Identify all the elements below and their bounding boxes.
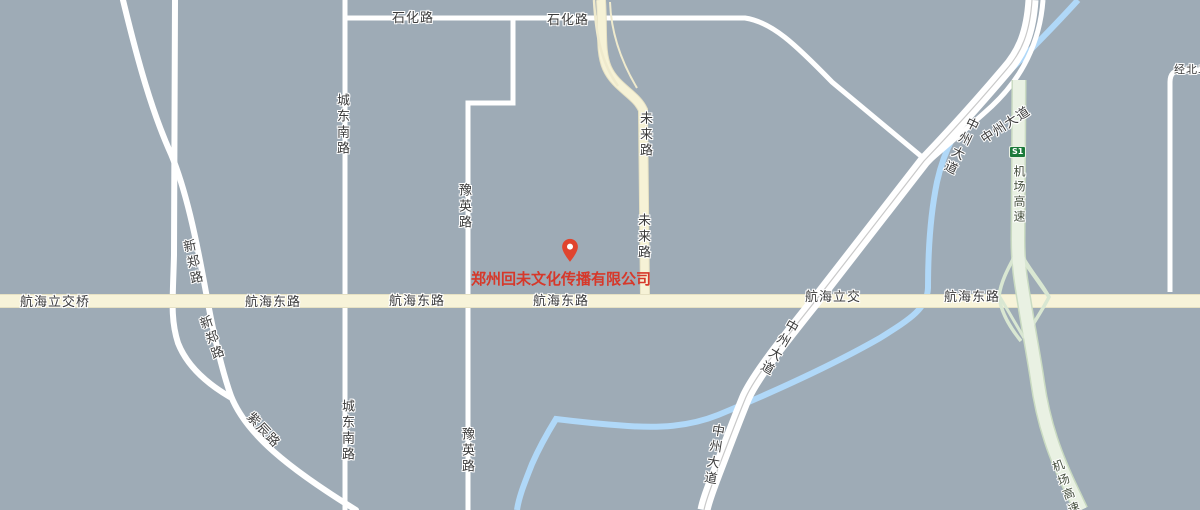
road-label-hanghai-2: 航海东路 xyxy=(389,295,445,308)
road-label-yuying-1: 豫英路 xyxy=(457,183,470,231)
road-label-chengdongnan-1: 城东南路 xyxy=(335,93,348,157)
road-label-shihua-2: 石化路 xyxy=(547,14,589,27)
road-network xyxy=(0,0,1200,510)
road-zhongzhou xyxy=(704,0,1032,510)
map-canvas[interactable]: 石化路 石化路 航海立交桥 航海东路 航海东路 航海东路 航海立交 航海东路 经… xyxy=(0,0,1200,510)
road-yuying xyxy=(468,20,513,510)
road-zhongzhou-centerline xyxy=(704,0,1032,510)
road-label-hanghai-1: 航海东路 xyxy=(245,296,301,309)
company-name-label[interactable]: 郑州回未文化传播有限公司 xyxy=(471,268,651,289)
road-jingbei xyxy=(1170,70,1200,292)
road-label-hanghai-lijiaoqiao: 航海立交桥 xyxy=(20,296,90,309)
road-label-hanghai-3: 航海东路 xyxy=(533,295,589,308)
road-label-yuying-2: 豫英路 xyxy=(460,427,473,475)
s1-expressway-badge: S1 xyxy=(1009,146,1026,158)
road-label-jichang-gaosu-1: 机场高速 xyxy=(1013,165,1025,225)
location-pin-icon[interactable] xyxy=(561,238,579,263)
road-xinzheng xyxy=(123,0,356,510)
road-label-weilai-2: 未来路 xyxy=(636,213,649,261)
road-label-weilai-1: 未来路 xyxy=(638,111,651,159)
road-label-hanghai-lijiao: 航海立交 xyxy=(805,291,861,304)
road-label-hanghai-4: 航海东路 xyxy=(944,291,1000,304)
road-label-jingbei: 经北二 xyxy=(1174,64,1200,75)
road-label-chengdongnan-2: 城东南路 xyxy=(340,399,353,463)
road-label-shihua-1: 石化路 xyxy=(392,12,434,25)
